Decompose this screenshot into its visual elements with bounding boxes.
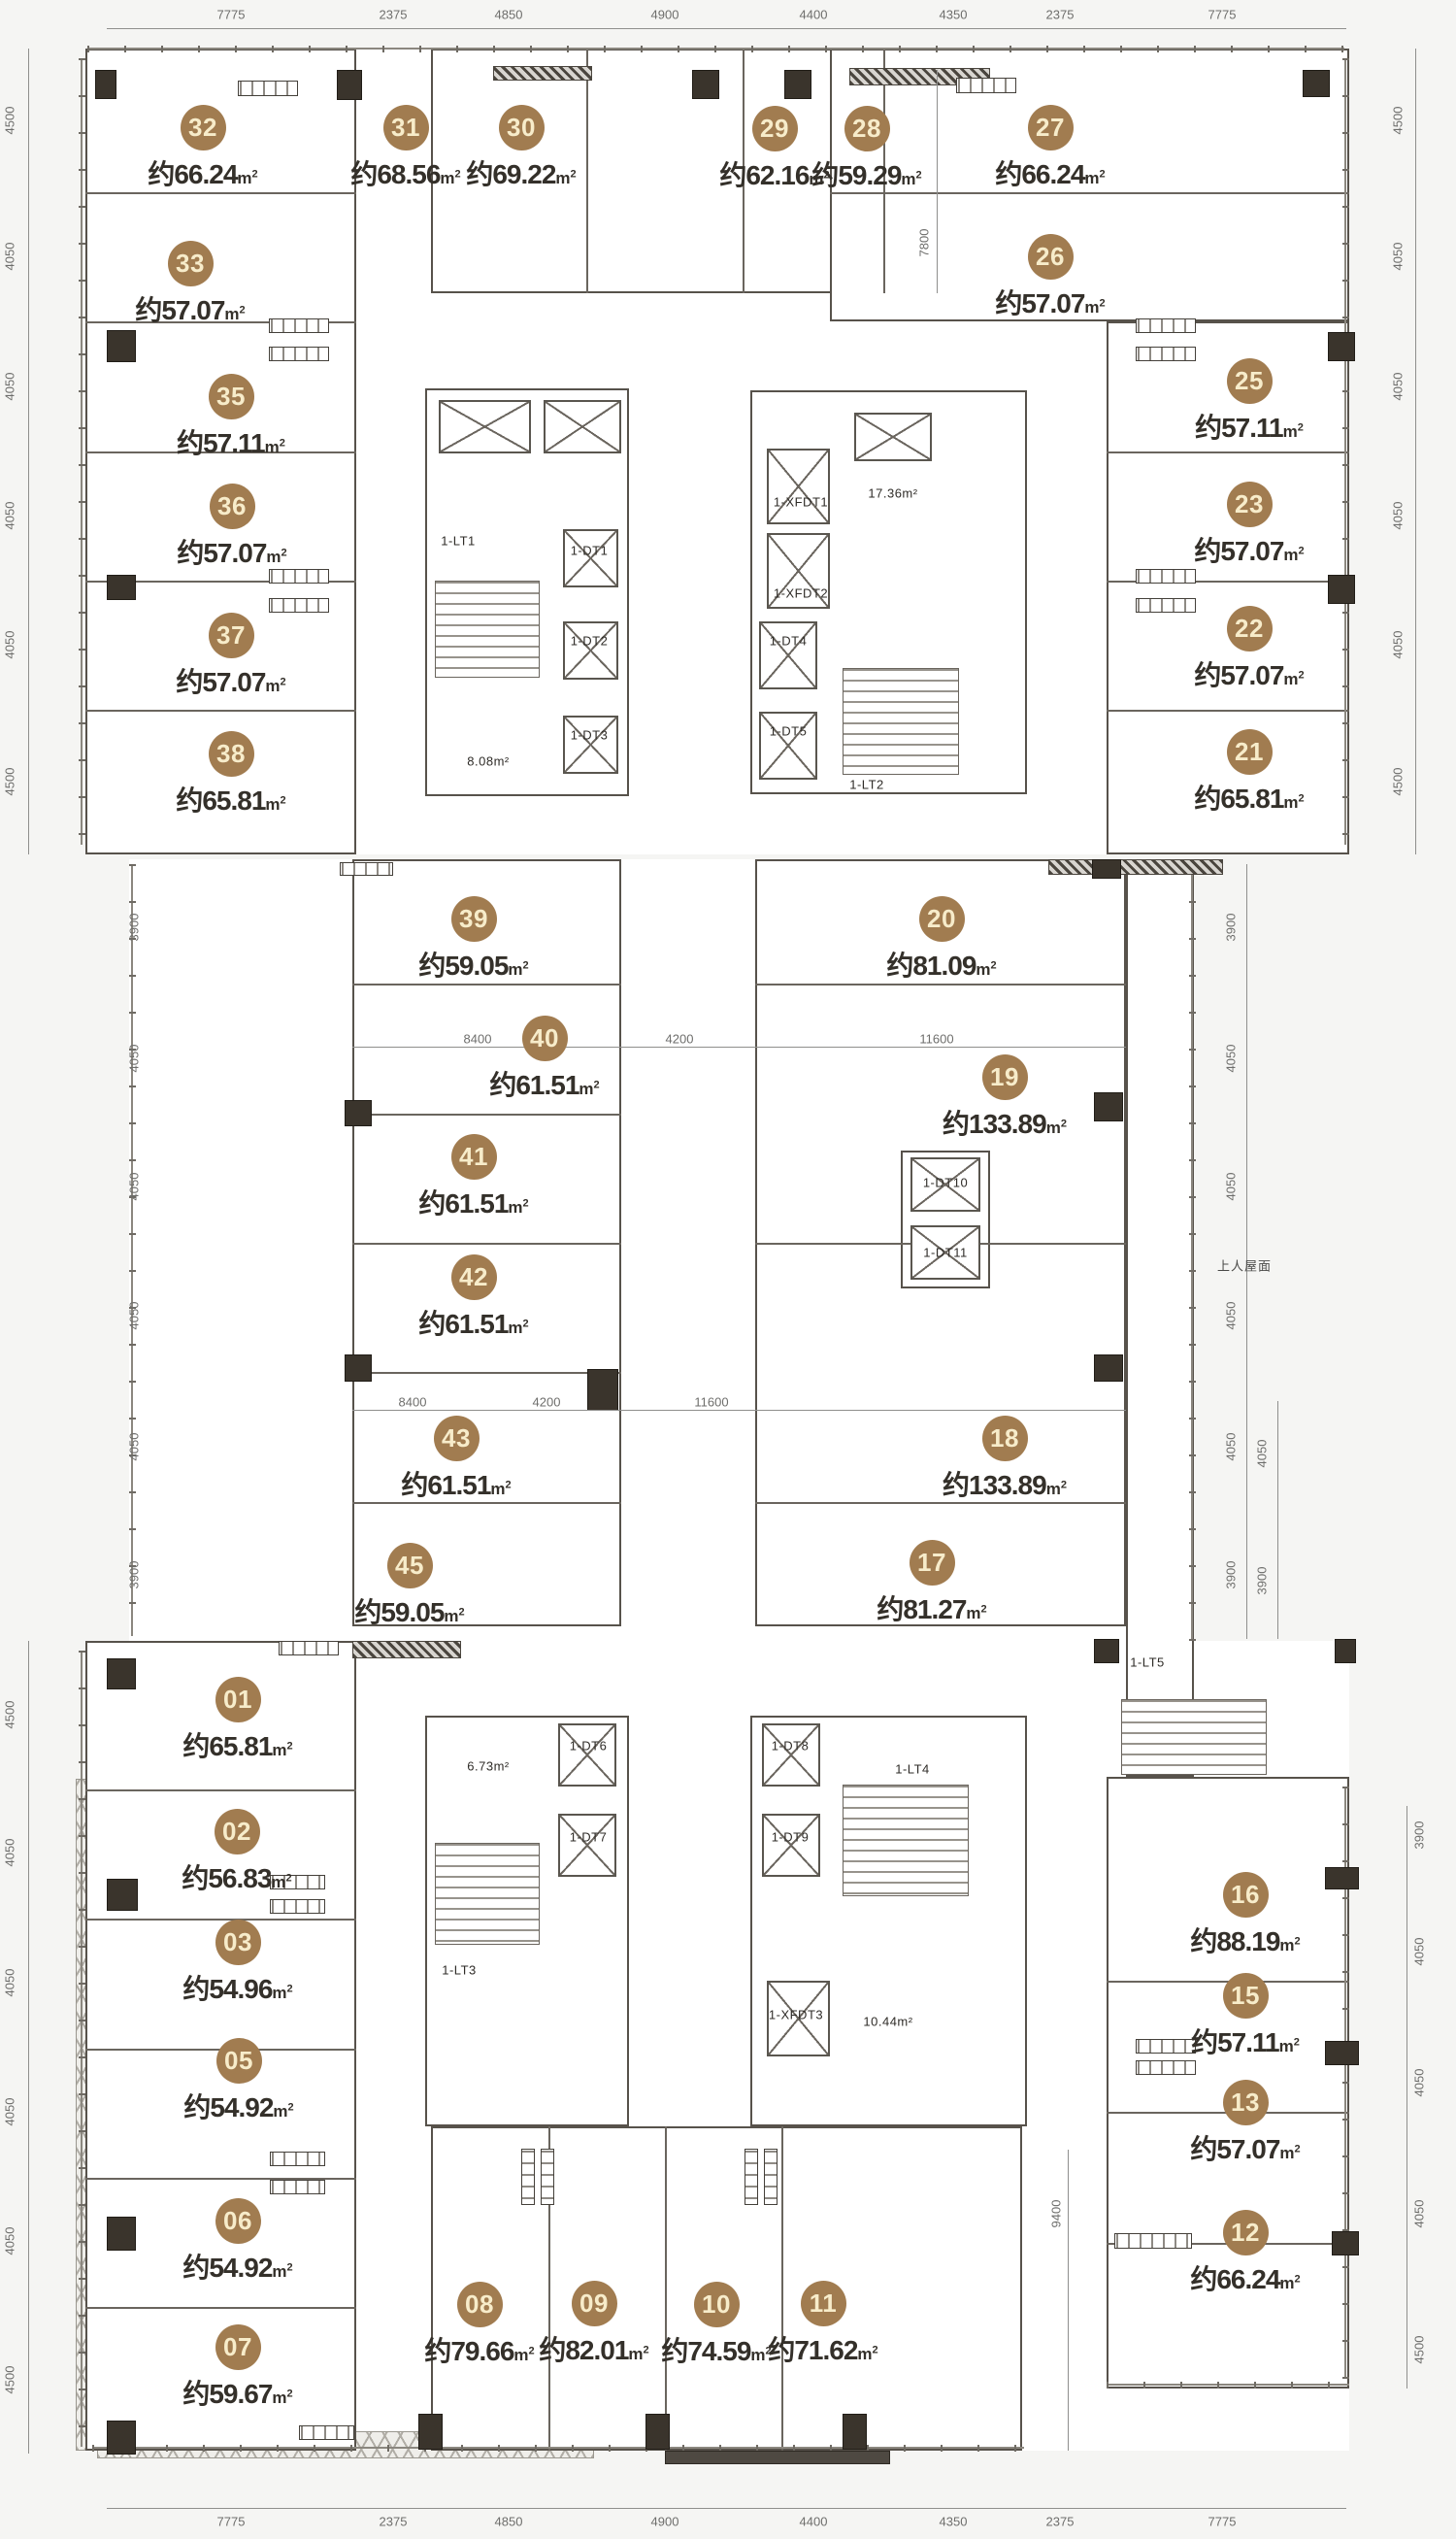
dimension-label: 4200	[533, 1395, 561, 1410]
dimension-line	[28, 49, 29, 854]
unit-number-badge: 32	[181, 105, 226, 150]
unit-area-label: 约57.07m2	[1133, 654, 1366, 693]
dimension-label: 4500	[3, 107, 17, 135]
unit-area-label: 约57.07m2	[115, 661, 347, 700]
window-wall	[1189, 864, 1196, 1641]
dimension-label: 4850	[495, 8, 523, 22]
unit-label: 22约57.07m2	[1133, 606, 1366, 693]
unit-number-badge: 45	[387, 1543, 433, 1588]
staircase	[435, 1843, 540, 1945]
structural-column	[784, 70, 811, 99]
dimension-label: 4050	[1412, 1938, 1427, 1966]
elevator-shaft	[544, 400, 621, 453]
dimension-label: 3900	[127, 914, 142, 942]
unit-number-badge: 43	[434, 1416, 480, 1461]
wall-divider	[352, 1372, 621, 1374]
dimension-label: 2375	[1046, 2515, 1075, 2529]
unit-area-label: 约88.19m2	[1129, 1921, 1362, 1959]
unit-number-badge: 22	[1227, 606, 1273, 651]
dimension-label: 3900	[1412, 1821, 1427, 1850]
dimension-label: 4050	[127, 1045, 142, 1073]
unit-area-label: 约71.62m2	[707, 2329, 940, 2368]
structural-column	[1303, 70, 1330, 97]
structural-column	[107, 330, 136, 362]
dimension-label: 4900	[651, 2515, 679, 2529]
core-label: 1-DT1	[571, 544, 609, 558]
unit-label: 40约61.51m2	[428, 1016, 661, 1103]
unit-label: 26约57.07m2	[934, 234, 1167, 321]
core-label: 1-DT5	[770, 724, 808, 739]
staircase	[843, 668, 959, 775]
unit-area-label: 约57.11m2	[1129, 2021, 1362, 2060]
dimension-label: 4050	[3, 373, 17, 401]
dimension-label: 4500	[3, 1701, 17, 1729]
dimension-label: 11600	[694, 1395, 728, 1410]
structural-column	[418, 2414, 443, 2450]
unit-number-badge: 35	[209, 374, 254, 419]
service-shaft	[269, 569, 329, 584]
window-wall	[129, 864, 136, 1636]
unit-number-badge: 33	[168, 241, 214, 286]
service-shaft	[1136, 569, 1196, 584]
dimension-label: 4050	[1224, 1173, 1239, 1201]
dimension-label: 4500	[1391, 768, 1406, 796]
unit-number-badge: 25	[1227, 358, 1273, 404]
service-shaft	[279, 1641, 339, 1655]
dimension-label: 4850	[495, 2515, 523, 2529]
wall-divider	[352, 1243, 621, 1245]
dimension-label: 7775	[1208, 8, 1237, 22]
unit-number-badge: 12	[1223, 2210, 1269, 2255]
core-label: 1-DT4	[770, 634, 808, 649]
unit-area-label: 约133.89m2	[888, 1103, 1121, 1142]
dimension-line	[352, 1410, 1126, 1411]
core-label: 8.08m²	[467, 754, 509, 769]
structural-column	[1094, 1639, 1119, 1663]
service-shaft	[764, 2149, 778, 2205]
unit-label: 25约57.11m2	[1133, 358, 1366, 446]
elevator-shaft	[762, 1814, 820, 1877]
unit-label: 30约69.22m2	[405, 105, 638, 192]
wall-divider	[755, 984, 1126, 986]
unit-label: 20约81.09m2	[825, 896, 1058, 984]
unit-number-badge: 30	[499, 105, 545, 150]
canopy-strip	[665, 2451, 890, 2464]
service-shaft	[745, 2149, 758, 2205]
dimension-label: 2375	[1046, 8, 1075, 22]
structural-column	[1335, 1639, 1356, 1663]
dimension-label: 4050	[3, 1839, 17, 1867]
unit-number-badge: 39	[451, 896, 497, 942]
unit-area-label: 约66.24m2	[934, 153, 1167, 192]
unit-label: 01约65.81m2	[121, 1677, 354, 1764]
window-wall	[1342, 58, 1349, 845]
dimension-label: 4350	[940, 2515, 968, 2529]
wall-divider	[352, 984, 621, 986]
unit-label: 35约57.11m2	[115, 374, 347, 461]
window-wall	[1107, 2382, 1349, 2389]
unit-number-badge: 38	[209, 731, 254, 777]
unit-number-badge: 11	[801, 2281, 846, 2326]
staircase	[843, 1785, 969, 1896]
core-label: 1-LT5	[1130, 1655, 1165, 1670]
dimension-label: 4050	[3, 1969, 17, 1997]
elevator-shaft	[854, 413, 932, 461]
unit-number-badge: 21	[1227, 729, 1273, 775]
unit-number-badge: 37	[209, 613, 254, 658]
dimension-label: 4050	[3, 2227, 17, 2255]
wall-divider	[1107, 451, 1349, 453]
dimension-label: 4900	[651, 8, 679, 22]
unit-label: 13约57.07m2	[1129, 2080, 1362, 2167]
dimension-label: 4200	[666, 1032, 694, 1047]
dimension-label: 2375	[380, 8, 408, 22]
dimension-label: 4050	[1391, 243, 1406, 271]
unit-label: 32约66.24m2	[86, 105, 319, 192]
dimension-label: 4050	[1255, 1440, 1270, 1468]
unit-area-label: 约81.27m2	[815, 1588, 1048, 1627]
service-shaft	[1136, 2060, 1196, 2075]
structural-column	[95, 70, 116, 99]
wall-outline	[1126, 859, 1194, 1777]
wall-divider	[85, 1789, 356, 1791]
service-shaft	[238, 81, 298, 96]
elevator-shaft	[563, 716, 618, 774]
dimension-label: 3900	[127, 1561, 142, 1589]
unit-number-badge: 20	[919, 896, 965, 942]
unit-area-label: 约57.07m2	[116, 532, 348, 571]
unit-number-badge: 26	[1028, 234, 1074, 280]
unit-label: 43约61.51m2	[340, 1416, 573, 1503]
dimension-label: 4500	[1391, 107, 1406, 135]
unit-label: 33约57.07m2	[74, 241, 307, 328]
floor-plan-canvas: 32约66.24m233约57.07m235约57.11m236约57.07m2…	[0, 0, 1456, 2539]
unit-area-label: 约57.11m2	[1133, 407, 1366, 446]
core-label: 1-LT3	[442, 1963, 477, 1978]
hatched-wall	[1048, 859, 1223, 875]
dimension-label: 4050	[1224, 1433, 1239, 1461]
unit-area-label: 约57.07m2	[1129, 2128, 1362, 2167]
service-shaft	[541, 2149, 554, 2205]
dimension-label: 8400	[399, 1395, 427, 1410]
unit-number-badge: 40	[522, 1016, 568, 1061]
service-shaft	[270, 1899, 325, 1914]
unit-label: 27约66.24m2	[934, 105, 1167, 192]
dimension-label: 4050	[1412, 2069, 1427, 2097]
dimension-label: 11600	[919, 1032, 953, 1047]
dimension-label: 4050	[1224, 1045, 1239, 1073]
dimension-label: 4050	[127, 1173, 142, 1201]
core-label: 1-DT7	[570, 1830, 608, 1845]
service-shaft	[270, 2180, 325, 2194]
unit-label: 06约54.92m2	[121, 2198, 354, 2286]
dimension-label: 4050	[3, 502, 17, 530]
hatched-wall	[352, 1641, 461, 1658]
core-label: 1-LT2	[849, 778, 884, 792]
core-label: 1-XFDT3	[769, 2008, 823, 2022]
unit-number-badge: 28	[844, 106, 890, 151]
unit-number-badge: 15	[1223, 1973, 1269, 2019]
unit-area-label: 约59.67m2	[121, 2373, 354, 2412]
dimension-label: 4050	[1391, 502, 1406, 530]
unit-area-label: 约54.92m2	[121, 2247, 354, 2286]
unit-label: 05约54.92m2	[122, 2038, 355, 2125]
unit-number-badge: 01	[215, 1677, 261, 1722]
structural-column	[1328, 575, 1355, 604]
dimension-label: 4050	[127, 1433, 142, 1461]
core-label: 1-DT11	[923, 1246, 967, 1260]
dimension-label: 4050	[1391, 631, 1406, 659]
unit-label: 18约133.89m2	[888, 1416, 1121, 1503]
unit-area-label: 约66.24m2	[86, 153, 319, 192]
unit-area-label: 约61.51m2	[428, 1064, 661, 1103]
unit-area-label: 约66.24m2	[1129, 2258, 1362, 2297]
unit-label: 03约54.96m2	[121, 1920, 354, 2007]
dimension-label: 4050	[1412, 2200, 1427, 2228]
service-shaft	[521, 2149, 535, 2205]
elevator-shaft	[767, 449, 830, 524]
elevator-shaft	[558, 1814, 616, 1877]
staircase	[1121, 1699, 1267, 1775]
roof-label: 上人屋面	[1217, 1256, 1272, 1275]
unit-label: 45约59.05m2	[293, 1543, 526, 1630]
dimension-label: 4400	[800, 2515, 828, 2529]
core-label: 1-DT6	[570, 1739, 608, 1754]
window-wall	[79, 58, 85, 845]
unit-area-label: 约61.51m2	[357, 1303, 590, 1342]
unit-number-badge: 27	[1028, 105, 1074, 150]
unit-area-label: 约57.07m2	[934, 283, 1167, 321]
staircase	[435, 581, 540, 678]
unit-number-badge: 03	[215, 1920, 261, 1965]
structural-column	[337, 70, 362, 100]
elevator-shaft	[563, 621, 618, 680]
elevator-shaft	[759, 712, 817, 780]
unit-number-badge: 16	[1223, 1872, 1269, 1918]
structural-column	[645, 2414, 670, 2450]
unit-number-badge: 19	[982, 1054, 1028, 1100]
dimension-label: 4050	[1224, 1302, 1239, 1330]
unit-number-badge: 42	[451, 1254, 497, 1300]
wall-divider	[85, 710, 356, 712]
unit-label: 23约57.07m2	[1133, 482, 1366, 569]
core-label: 1-DT10	[923, 1176, 968, 1190]
unit-label: 39约59.05m2	[357, 896, 590, 984]
dimension-line	[1406, 1806, 1407, 2389]
unit-area-label: 约54.96m2	[121, 1968, 354, 2007]
unit-number-badge: 06	[215, 2198, 261, 2244]
structural-column	[692, 70, 719, 99]
unit-area-label: 约57.07m2	[74, 289, 307, 328]
unit-label: 15约57.11m2	[1129, 1973, 1362, 2060]
dimension-label: 4400	[800, 8, 828, 22]
core-label: 1-LT1	[441, 534, 476, 549]
dimension-line	[1277, 1401, 1278, 1639]
unit-area-label: 约57.11m2	[115, 422, 347, 461]
unit-area-label: 约54.92m2	[122, 2087, 355, 2125]
unit-area-label: 约59.05m2	[357, 945, 590, 984]
unit-number-badge: 23	[1227, 482, 1273, 527]
unit-number-badge: 13	[1223, 2080, 1269, 2125]
unit-label: 37约57.07m2	[115, 613, 347, 700]
unit-number-badge: 17	[910, 1540, 955, 1586]
core-label: 1-XFDT2	[774, 586, 828, 601]
window-wall	[87, 46, 1344, 52]
core-label: 1-DT2	[571, 634, 609, 649]
core-label: 1-DT8	[772, 1739, 810, 1754]
unit-area-label: 约65.81m2	[115, 780, 347, 818]
dimension-label: 4500	[1412, 2336, 1427, 2364]
elevator-shaft	[759, 621, 817, 689]
dimension-label: 4050	[1391, 373, 1406, 401]
unit-number-badge: 36	[210, 484, 255, 529]
service-shaft	[270, 2152, 325, 2166]
unit-number-badge: 41	[451, 1134, 497, 1180]
dimension-label: 4350	[940, 8, 968, 22]
dimension-label: 4050	[3, 2098, 17, 2126]
structural-column	[843, 2414, 867, 2450]
unit-label: 07约59.67m2	[121, 2324, 354, 2412]
window-wall	[79, 1651, 85, 2447]
wall-divider	[352, 1114, 621, 1116]
dimension-label: 2375	[380, 2515, 408, 2529]
dimension-label: 7775	[1208, 2515, 1237, 2529]
unit-label: 19约133.89m2	[888, 1054, 1121, 1142]
dimension-label: 7775	[217, 2515, 246, 2529]
service-shaft	[269, 598, 329, 613]
structural-column	[587, 1369, 618, 1411]
service-shaft	[299, 2425, 354, 2440]
unit-area-label: 约61.51m2	[340, 1464, 573, 1503]
unit-number-badge: 07	[215, 2324, 261, 2370]
structural-column	[107, 2421, 136, 2455]
dimension-label: 3900	[1224, 1561, 1239, 1589]
dimension-label: 7800	[917, 229, 932, 257]
structural-column	[345, 1354, 372, 1382]
dimension-label: 8400	[464, 1032, 492, 1047]
core-label: 1-XFDT1	[774, 495, 828, 510]
unit-area-label: 约69.22m2	[405, 153, 638, 192]
wall-divider	[85, 2307, 356, 2309]
dimension-line	[28, 1641, 29, 2454]
unit-number-badge: 18	[982, 1416, 1028, 1461]
core-label: 6.73m²	[467, 1759, 509, 1774]
dimension-label: 4050	[3, 243, 17, 271]
unit-label: 11约71.62m2	[707, 2281, 940, 2368]
dimension-line	[107, 2508, 1346, 2509]
unit-label: 12约66.24m2	[1129, 2210, 1362, 2297]
unit-area-label: 约65.81m2	[1133, 778, 1366, 817]
unit-label: 16约88.19m2	[1129, 1872, 1362, 1959]
unit-label: 41约61.51m2	[357, 1134, 590, 1221]
wall-divider	[1107, 710, 1349, 712]
core-label: 1-LT4	[895, 1762, 930, 1777]
dimension-label: 4050	[3, 631, 17, 659]
dimension-line	[107, 28, 1346, 29]
dimension-line	[1415, 49, 1416, 854]
structural-column	[107, 575, 136, 600]
structural-column	[1328, 332, 1355, 361]
core-label: 1-DT3	[571, 728, 609, 743]
unit-area-label: 约59.05m2	[293, 1591, 526, 1630]
elevator-shaft	[762, 1723, 820, 1787]
dimension-label: 3900	[1255, 1567, 1270, 1595]
structural-column	[345, 1100, 372, 1126]
unit-area-label: 约61.51m2	[357, 1183, 590, 1221]
unit-label: 42约61.51m2	[357, 1254, 590, 1342]
unit-number-badge: 05	[216, 2038, 262, 2084]
unit-label: 02约56.83m2	[120, 1809, 353, 1896]
unit-number-badge: 02	[215, 1809, 260, 1854]
structural-column	[1094, 1354, 1123, 1382]
unit-area-label: 约56.83m2	[120, 1857, 353, 1896]
dimension-line	[1246, 864, 1247, 1639]
unit-label: 21约65.81m2	[1133, 729, 1366, 817]
wall-divider	[85, 192, 356, 194]
core-label: 17.36m²	[868, 486, 917, 501]
elevator-shaft	[558, 1723, 616, 1787]
unit-area-label: 约81.09m2	[825, 945, 1058, 984]
unit-area-label: 约57.07m2	[1133, 530, 1366, 569]
unit-label: 38约65.81m2	[115, 731, 347, 818]
unit-label: 36约57.07m2	[116, 484, 348, 571]
dimension-label: 4050	[127, 1302, 142, 1330]
unit-area-label: 约65.81m2	[121, 1725, 354, 1764]
unit-area-label: 约133.89m2	[888, 1464, 1121, 1503]
unit-label: 17约81.27m2	[815, 1540, 1048, 1627]
dimension-label: 7775	[217, 8, 246, 22]
elevator-shaft	[439, 400, 531, 453]
service-shaft	[340, 862, 393, 876]
dimension-label: 4500	[3, 768, 17, 796]
core-label: 10.44m²	[863, 2015, 912, 2029]
service-shaft	[956, 78, 1016, 93]
dimension-label: 9400	[1049, 2200, 1064, 2228]
structural-column	[1092, 859, 1121, 879]
dimension-label: 4500	[3, 2366, 17, 2394]
dimension-line	[1068, 2150, 1069, 2451]
hatched-wall	[493, 66, 592, 81]
dimension-label: 3900	[1224, 914, 1239, 942]
service-shaft	[269, 347, 329, 361]
core-label: 1-DT9	[772, 1830, 810, 1845]
elevator-shaft	[563, 529, 618, 587]
